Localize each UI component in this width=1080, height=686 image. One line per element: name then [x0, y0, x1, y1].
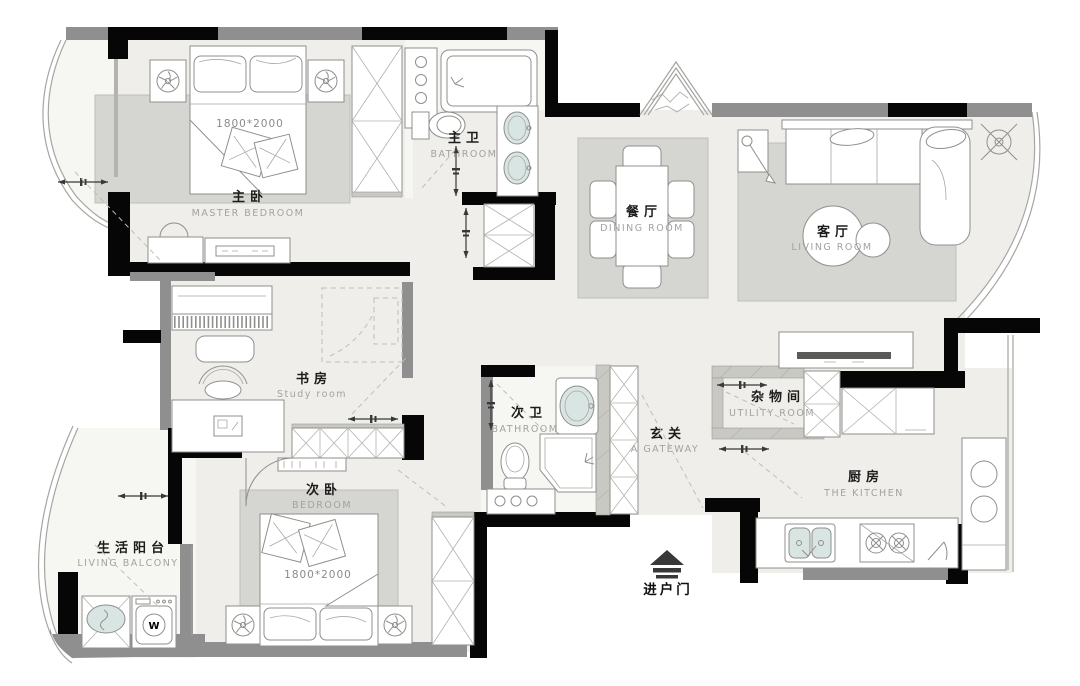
entry-door: 进户门: [643, 550, 693, 598]
utility-label-en: UTILITY ROOM: [729, 408, 815, 419]
window-master-bedroom: [218, 27, 362, 40]
washer-letter: W: [148, 621, 159, 632]
window-living-room: [712, 103, 888, 117]
study-label-en: Study room: [277, 389, 347, 400]
bath2-label-en: BATHROOM: [492, 424, 559, 435]
dining-label-zh: 餐厅: [625, 204, 662, 220]
utility-cabinet: [804, 371, 840, 437]
tv-console: [779, 332, 913, 368]
bath2-label-zh: 次卫: [511, 405, 547, 421]
bathtub: [441, 50, 537, 112]
master-bathroom-label-en: BATHROOM: [431, 149, 498, 160]
kitchen-top-cabinet: [842, 388, 934, 434]
master-bed-size-label: 1800*2000: [216, 118, 284, 130]
nightstand2-left: [226, 606, 260, 644]
nightstand2-right: [378, 606, 412, 644]
entry-door-arrow-icon: [650, 550, 684, 579]
bedroom2-label-en: BEDROOM: [292, 500, 352, 511]
shoe-cabinet: [610, 366, 638, 514]
floor-plan-svg: 1800*2000 主卧 MASTER BEDROOM: [0, 0, 1080, 686]
washing-machine: W: [132, 596, 176, 648]
kitchen-tall-cabinet: [962, 438, 1006, 570]
piano-bench: [196, 336, 254, 362]
kitchen-stove: [860, 524, 914, 562]
living-label-zh: 客厅: [817, 224, 853, 240]
second-bed-size-label: 1800*2000: [284, 569, 352, 581]
gateway-label-zh: 玄关: [650, 426, 686, 442]
kitchen-sink: [785, 524, 835, 562]
master-bathroom-label-zh: 主卫: [448, 130, 484, 146]
master-wardrobe: [352, 46, 402, 197]
balcony-label-en: LIVING BALCONY: [77, 558, 178, 569]
entry-door-label: 进户门: [643, 581, 693, 598]
window-top-left: [66, 27, 110, 40]
kitchen-label-en: THE KITCHEN: [823, 488, 904, 499]
desk: [172, 400, 284, 452]
bedroom2-dresser: [278, 458, 346, 471]
kitchen-counter: [756, 518, 958, 568]
bath2-vanity: [487, 489, 555, 514]
balcony-label-zh: 生活阳台: [97, 540, 169, 556]
window-living-corner: [967, 103, 1032, 117]
nightstand-right: [308, 60, 344, 102]
piano: [172, 286, 272, 330]
nightstand-left: [150, 60, 186, 102]
hall-closet: [484, 204, 534, 267]
bay-window: [640, 62, 712, 115]
bedroom2-wardrobe: [432, 512, 474, 645]
master-bedroom-label-en: MASTER BEDROOM: [192, 208, 305, 219]
bath2-sink: [556, 378, 598, 434]
floor-plan-canvas: 1800*2000 主卧 MASTER BEDROOM: [0, 0, 1080, 686]
utility-label-zh: 杂物间: [751, 389, 805, 405]
living-label-en: LIVING ROOM: [791, 242, 872, 253]
master-bedroom-label-zh: 主卧: [232, 189, 268, 205]
double-sink: [497, 106, 538, 196]
kitchen-label-zh: 厨房: [848, 469, 884, 485]
study-label-zh: 书房: [296, 371, 332, 387]
balcony-sink: [82, 596, 130, 648]
dining-label-en: DINING ROOM: [600, 223, 684, 234]
toilet-second: [501, 443, 529, 489]
study-closet: [292, 424, 404, 458]
bedroom2-label-zh: 次卧: [306, 482, 342, 498]
gateway-label-en: A GATEWAY: [631, 444, 699, 455]
